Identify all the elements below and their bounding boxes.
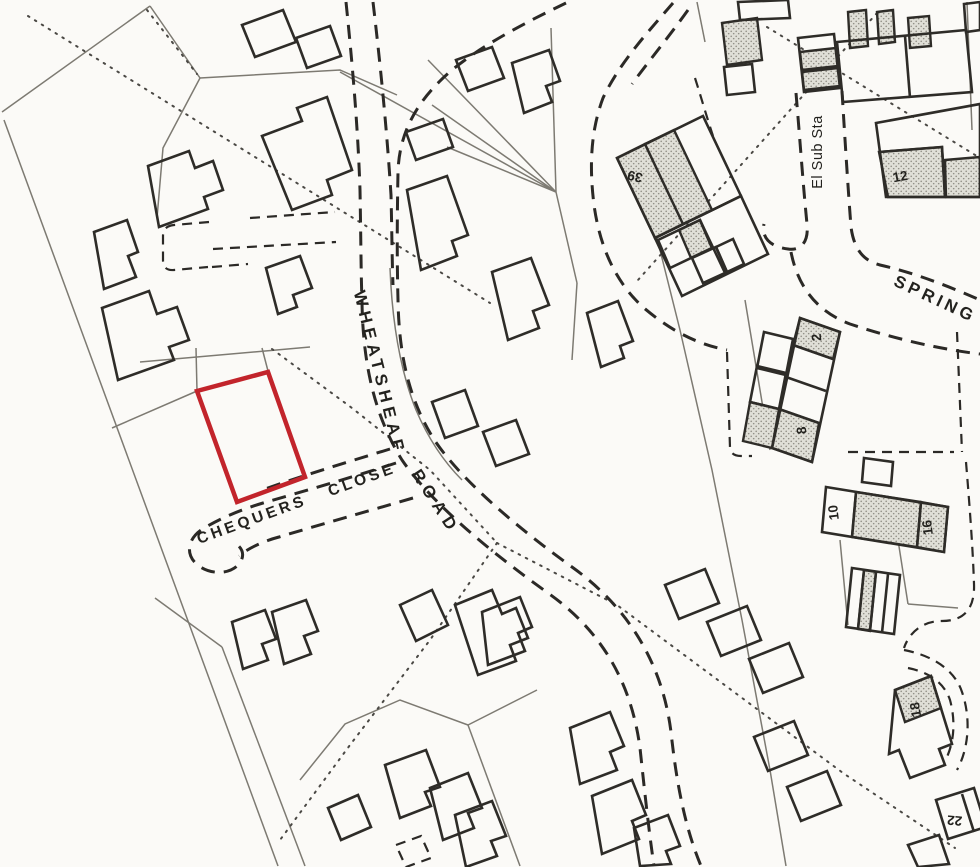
boundary-line [196, 348, 197, 391]
house-number-22: 22 [946, 812, 962, 828]
house-number-12: 12 [892, 168, 909, 185]
hatched-building [908, 16, 931, 48]
hatched-building [945, 157, 980, 197]
map-paper-background [0, 0, 980, 867]
el-sub-sta-label: El Sub Sta [810, 115, 826, 189]
hatched-building [848, 10, 868, 48]
hatched-building [802, 68, 840, 90]
hatched-building [800, 48, 838, 70]
hatched-building [879, 147, 945, 197]
house-number-16: 16 [919, 519, 936, 536]
house-number-10: 10 [825, 504, 842, 521]
hatched-building [722, 18, 762, 65]
map-canvas: WHEATSHEAF ROAD CHEQUERS CLOSE SPRING El… [0, 0, 980, 867]
house-number-2: 2 [809, 333, 825, 342]
house-number-18: 18 [907, 701, 924, 719]
site-location-plan: WHEATSHEAF ROAD CHEQUERS CLOSE SPRING El… [0, 0, 980, 867]
